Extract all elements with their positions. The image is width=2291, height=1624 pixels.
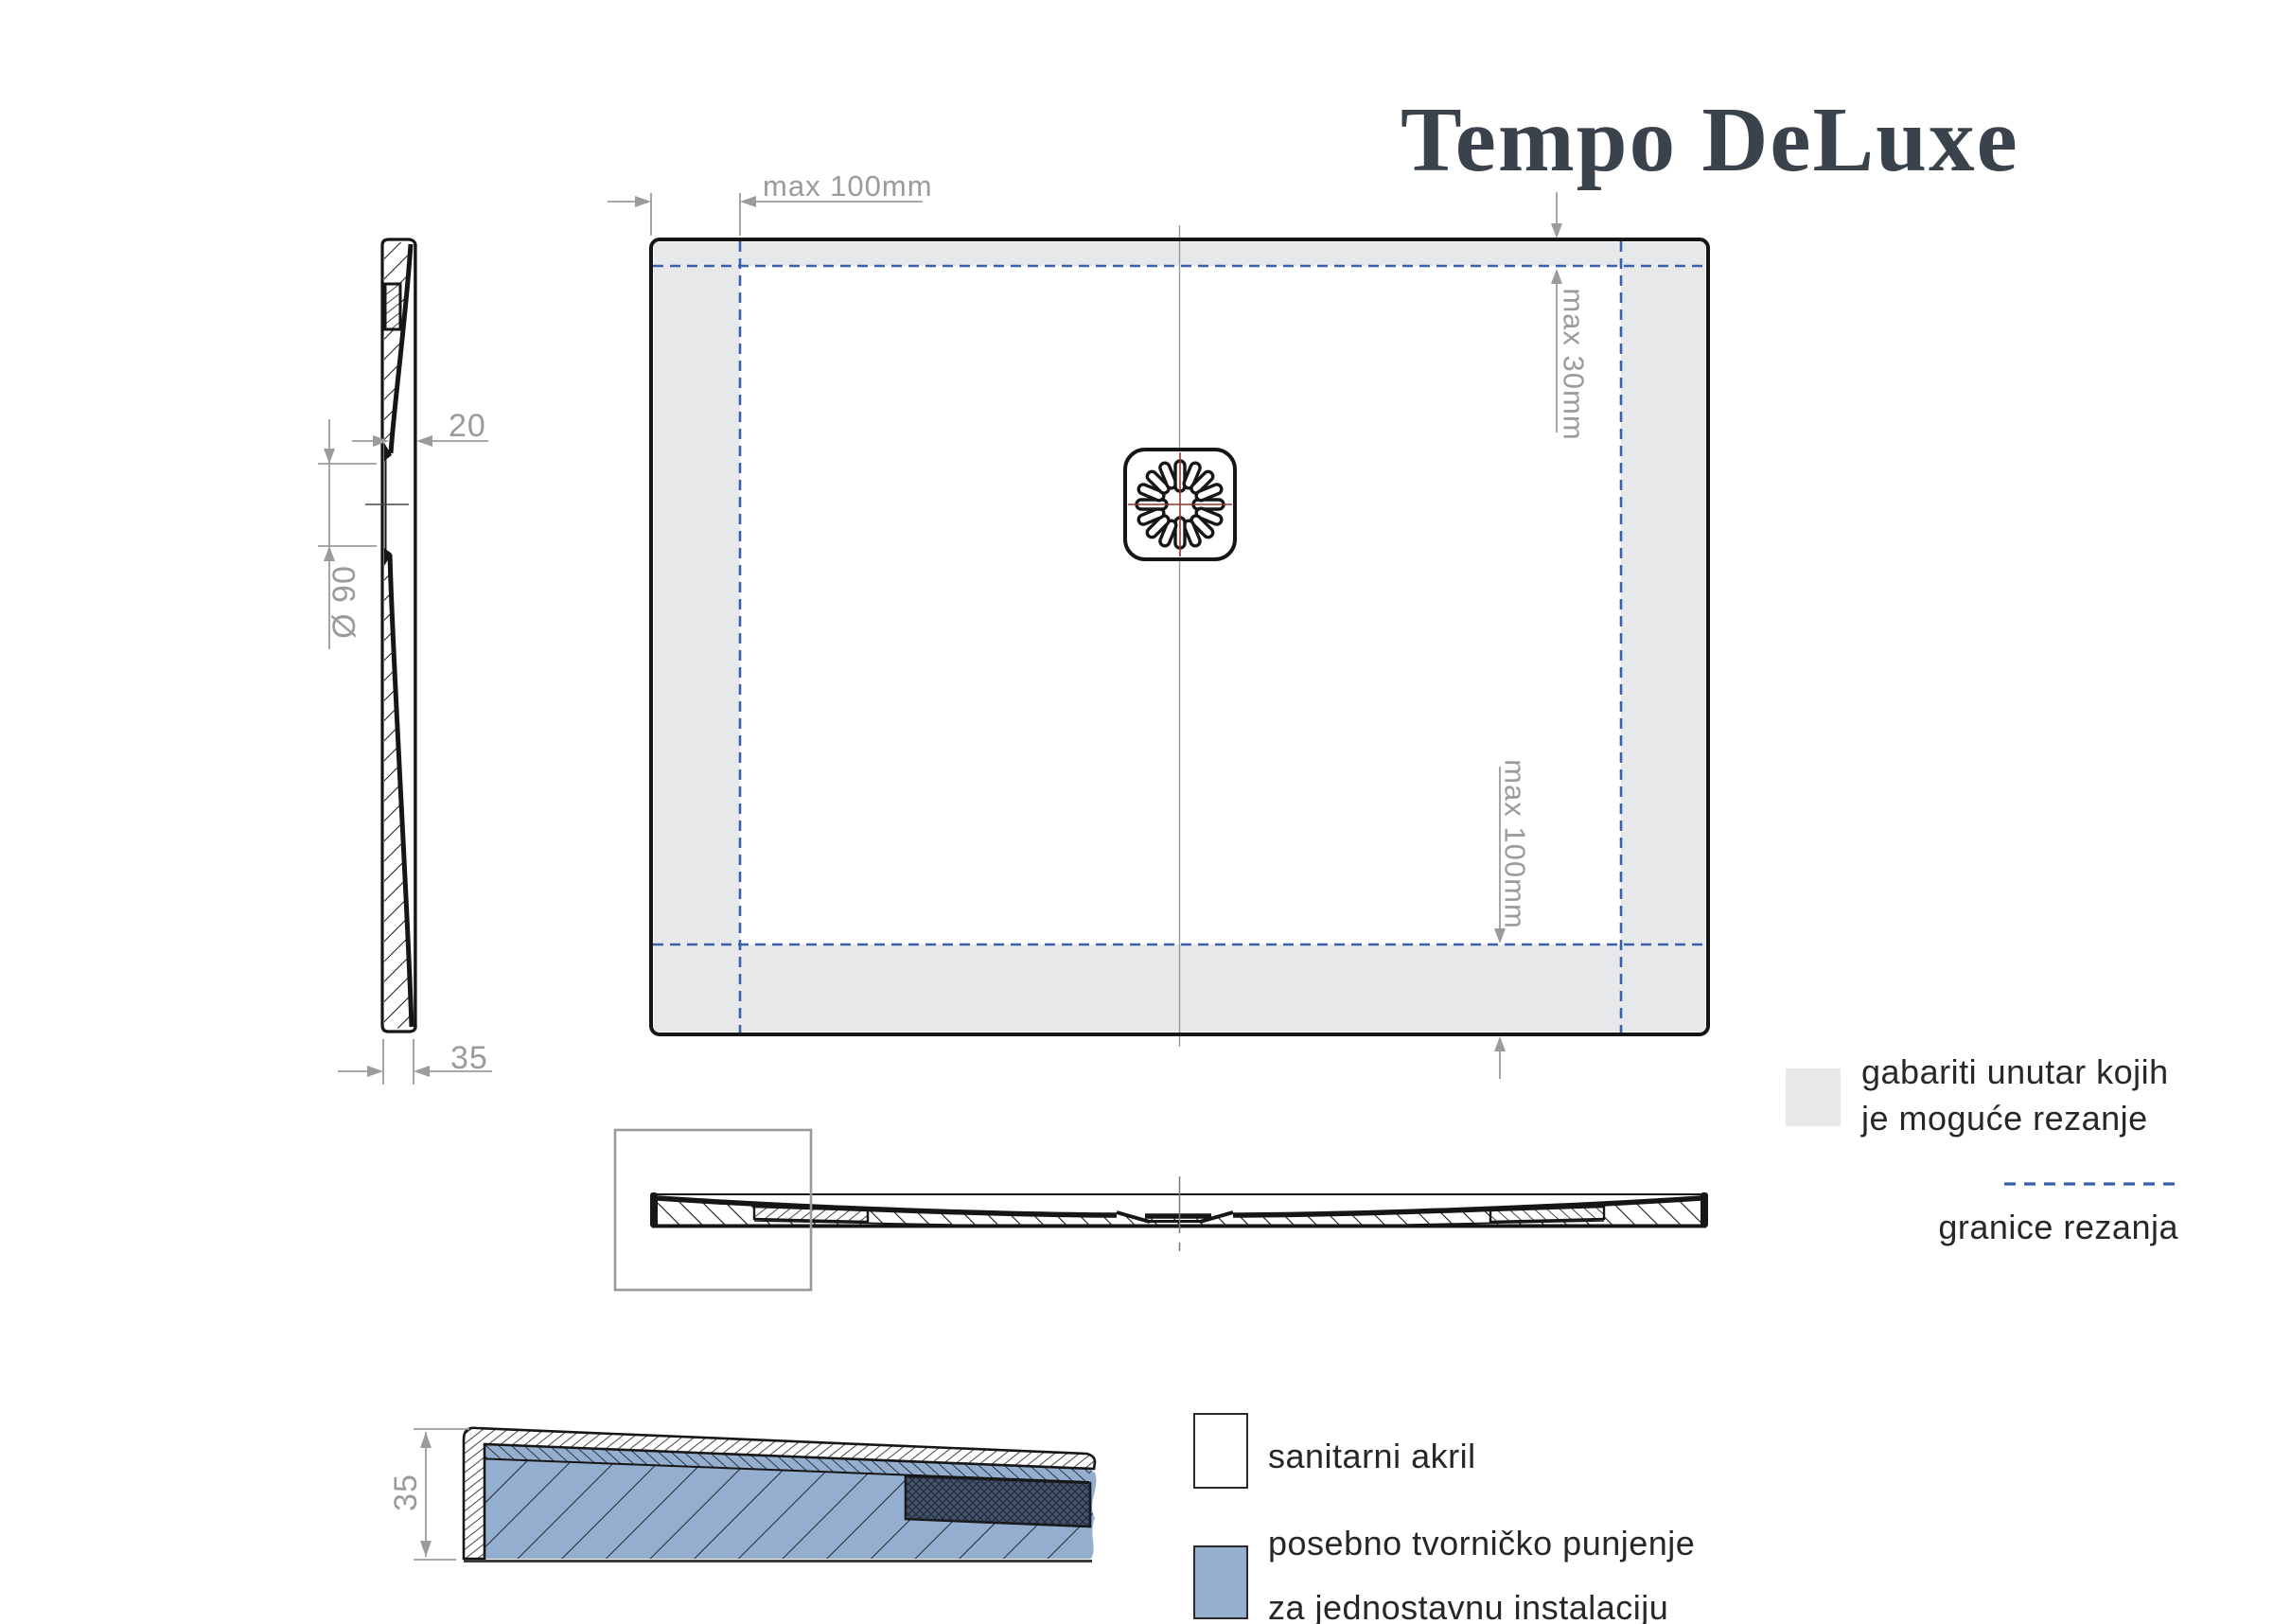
factory-filling-swatch: [1193, 1545, 1248, 1619]
dim-label-detail-height: 35: [390, 1474, 422, 1511]
factory-filling-label-line2: za jednostavnu instalaciju: [1268, 1584, 1668, 1624]
dim-label-top-margin: max 100mm: [763, 171, 933, 201]
cut-zone-label-line1: gabariti unutar kojih: [1861, 1049, 2169, 1095]
plan-view: [608, 192, 1708, 1079]
drawing-sheet: Tempo DeLuxe max 100mm max 30mm max 100m…: [0, 0, 2291, 1624]
factory-filling-label-line1: posebno tvorničko punjenje: [1268, 1520, 1695, 1566]
page-title: Tempo DeLuxe: [1401, 87, 2019, 192]
dim-label-right-top-margin: max 30mm: [1560, 288, 1589, 440]
cut-limit-label: granice rezanja: [1938, 1204, 2178, 1250]
dim-label-drain-diameter: Ø 90: [328, 565, 361, 639]
dim-label-center-thickness: 20: [449, 410, 486, 442]
dim-label-bottom-margin: max 100mm: [1501, 759, 1530, 929]
acrylic-label: sanitarni akril: [1268, 1433, 1476, 1479]
technical-drawing: [0, 0, 2291, 1624]
cut-zone-label-line2: je moguće rezanje: [1861, 1095, 2148, 1141]
dim-label-edge-thickness: 35: [450, 1042, 488, 1074]
detail-dark-insert: [906, 1476, 1090, 1527]
cut-zone-swatch: [1786, 1068, 1841, 1126]
cross-section-view: [615, 1130, 1708, 1290]
corner-detail-view: [414, 1428, 1096, 1562]
drain-grate: [1125, 450, 1235, 559]
acrylic-swatch: [1193, 1413, 1248, 1489]
side-profile-view: [318, 239, 492, 1085]
